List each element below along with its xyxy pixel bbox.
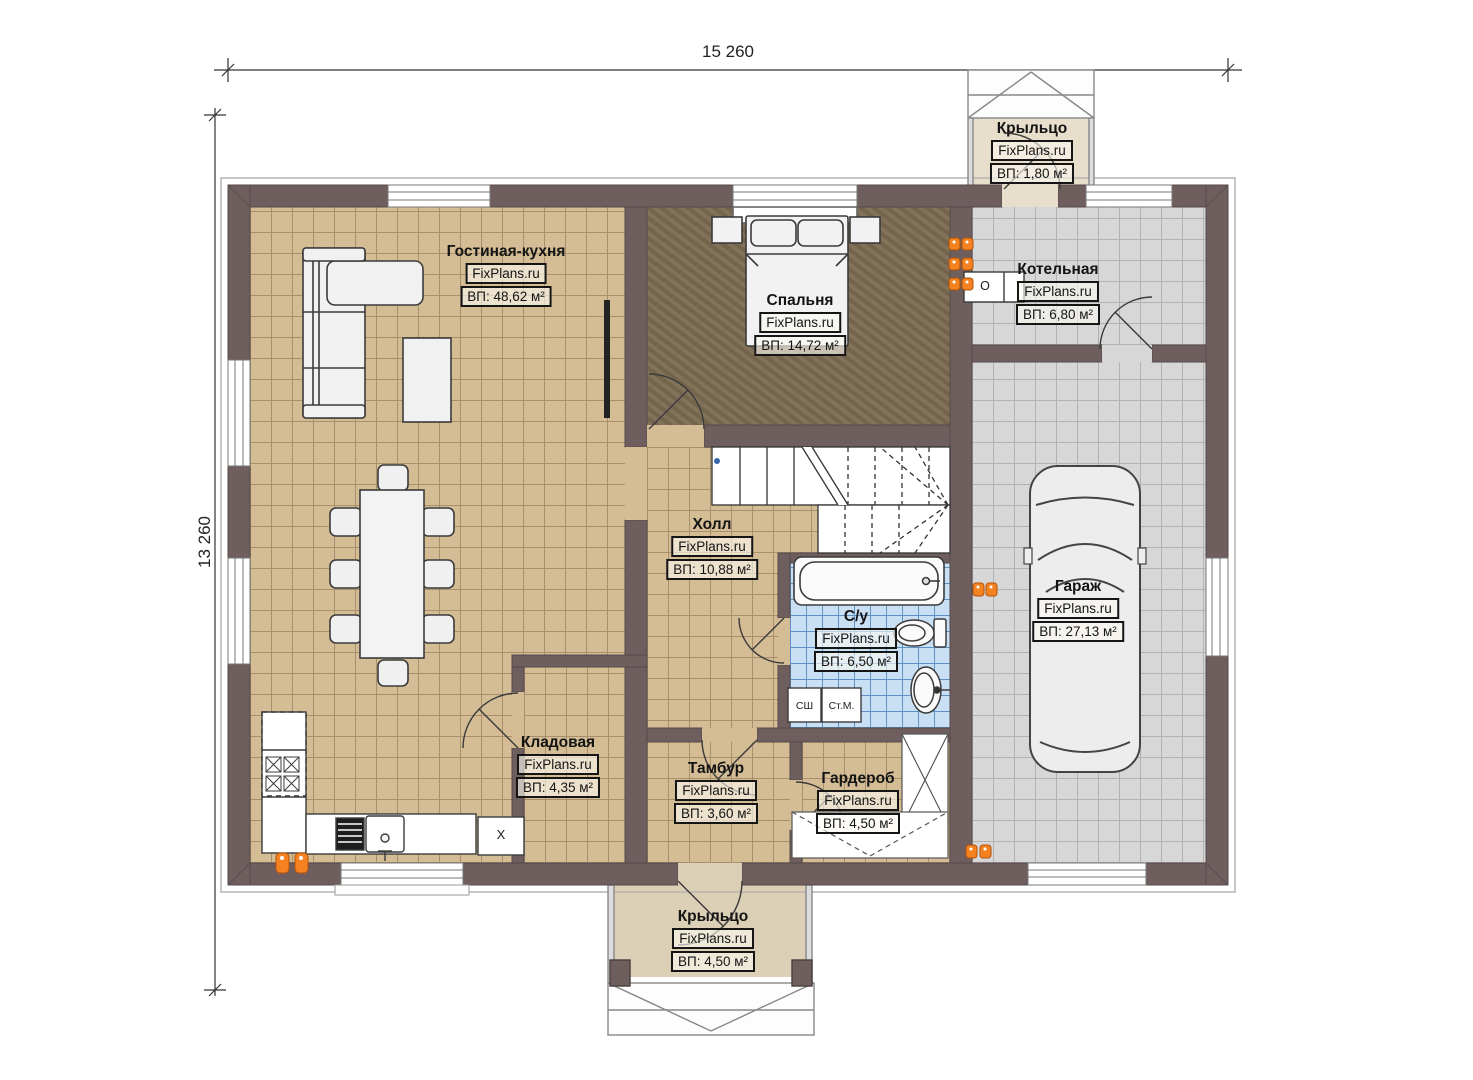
brand-box: FixPlans.ru (675, 780, 757, 801)
room-label-porch-bottom: Крыльцо FixPlans.ru ВП: 4,50 м² (671, 908, 755, 972)
area-box: ВП: 27,13 м² (1032, 621, 1124, 642)
area-box: ВП: 6,80 м² (1016, 304, 1100, 325)
marker-dryer: СШ (788, 700, 821, 712)
bathtub (794, 557, 944, 605)
room-label-garage: Гараж FixPlans.ru ВП: 27,13 м² (1032, 578, 1124, 642)
room-name: Тамбур (674, 760, 758, 778)
marker-washer: Ст.М. (822, 700, 861, 712)
room-label-bathroom: С/у FixPlans.ru ВП: 6,50 м² (814, 608, 898, 672)
brand-box: FixPlans.ru (1017, 281, 1099, 302)
dimension-width: 15 260 (628, 42, 828, 62)
brand-box: FixPlans.ru (817, 790, 899, 811)
marker-boiler-unit: О (966, 279, 1004, 293)
area-box: ВП: 3,60 м² (674, 803, 758, 824)
marker-cabinet: X (478, 827, 524, 842)
room-label-bedroom: Спальня FixPlans.ru ВП: 14,72 м² (754, 292, 846, 356)
brand-box: FixPlans.ru (465, 263, 547, 284)
area-box: ВП: 1,80 м² (990, 163, 1074, 184)
room-name: С/у (814, 608, 898, 626)
toilet (894, 619, 946, 647)
area-box: ВП: 4,35 м² (516, 777, 600, 798)
brand-box: FixPlans.ru (759, 312, 841, 333)
dimension-height: 13 260 (195, 492, 215, 592)
room-name: Крыльцо (671, 908, 755, 926)
room-name: Котельная (1016, 261, 1100, 279)
room-label-porch-top: Крыльцо FixPlans.ru ВП: 1,80 м² (990, 120, 1074, 184)
dining-set (330, 465, 454, 686)
room-name: Спальня (754, 292, 846, 310)
room-name: Гардероб (816, 770, 900, 788)
brand-box: FixPlans.ru (1037, 598, 1119, 619)
brand-box: FixPlans.ru (815, 628, 897, 649)
room-label-storage: Кладовая FixPlans.ru ВП: 4,35 м² (516, 734, 600, 798)
area-box: ВП: 48,62 м² (460, 286, 552, 307)
room-name: Гостиная-кухня (447, 243, 566, 261)
room-name: Гараж (1032, 578, 1124, 596)
coffee-table (403, 338, 451, 422)
room-label-vestibule: Тамбур FixPlans.ru ВП: 3,60 м² (674, 760, 758, 824)
brand-box: FixPlans.ru (991, 140, 1073, 161)
floor-plan: 15 260 13 260 Гостиная-кухня FixPlans.ru… (0, 0, 1473, 1080)
tv (604, 300, 610, 418)
garage-gate (1028, 863, 1146, 885)
area-box: ВП: 14,72 м² (754, 335, 846, 356)
room-label-wardrobe: Гардероб FixPlans.ru ВП: 4,50 м² (816, 770, 900, 834)
area-box: ВП: 4,50 м² (671, 951, 755, 972)
room-name: Крыльцо (990, 120, 1074, 138)
area-box: ВП: 4,50 м² (816, 813, 900, 834)
brand-box: FixPlans.ru (672, 928, 754, 949)
room-label-hall: Холл FixPlans.ru ВП: 10,88 м² (666, 516, 758, 580)
room-name: Кладовая (516, 734, 600, 752)
room-label-living: Гостиная-кухня FixPlans.ru ВП: 48,62 м² (447, 243, 566, 307)
area-box: ВП: 10,88 м² (666, 559, 758, 580)
room-name: Холл (666, 516, 758, 534)
room-label-boiler: Котельная FixPlans.ru ВП: 6,80 м² (1016, 261, 1100, 325)
wash-basin (911, 667, 950, 713)
area-box: ВП: 6,50 м² (814, 651, 898, 672)
brand-box: FixPlans.ru (517, 754, 599, 775)
brand-box: FixPlans.ru (671, 536, 753, 557)
